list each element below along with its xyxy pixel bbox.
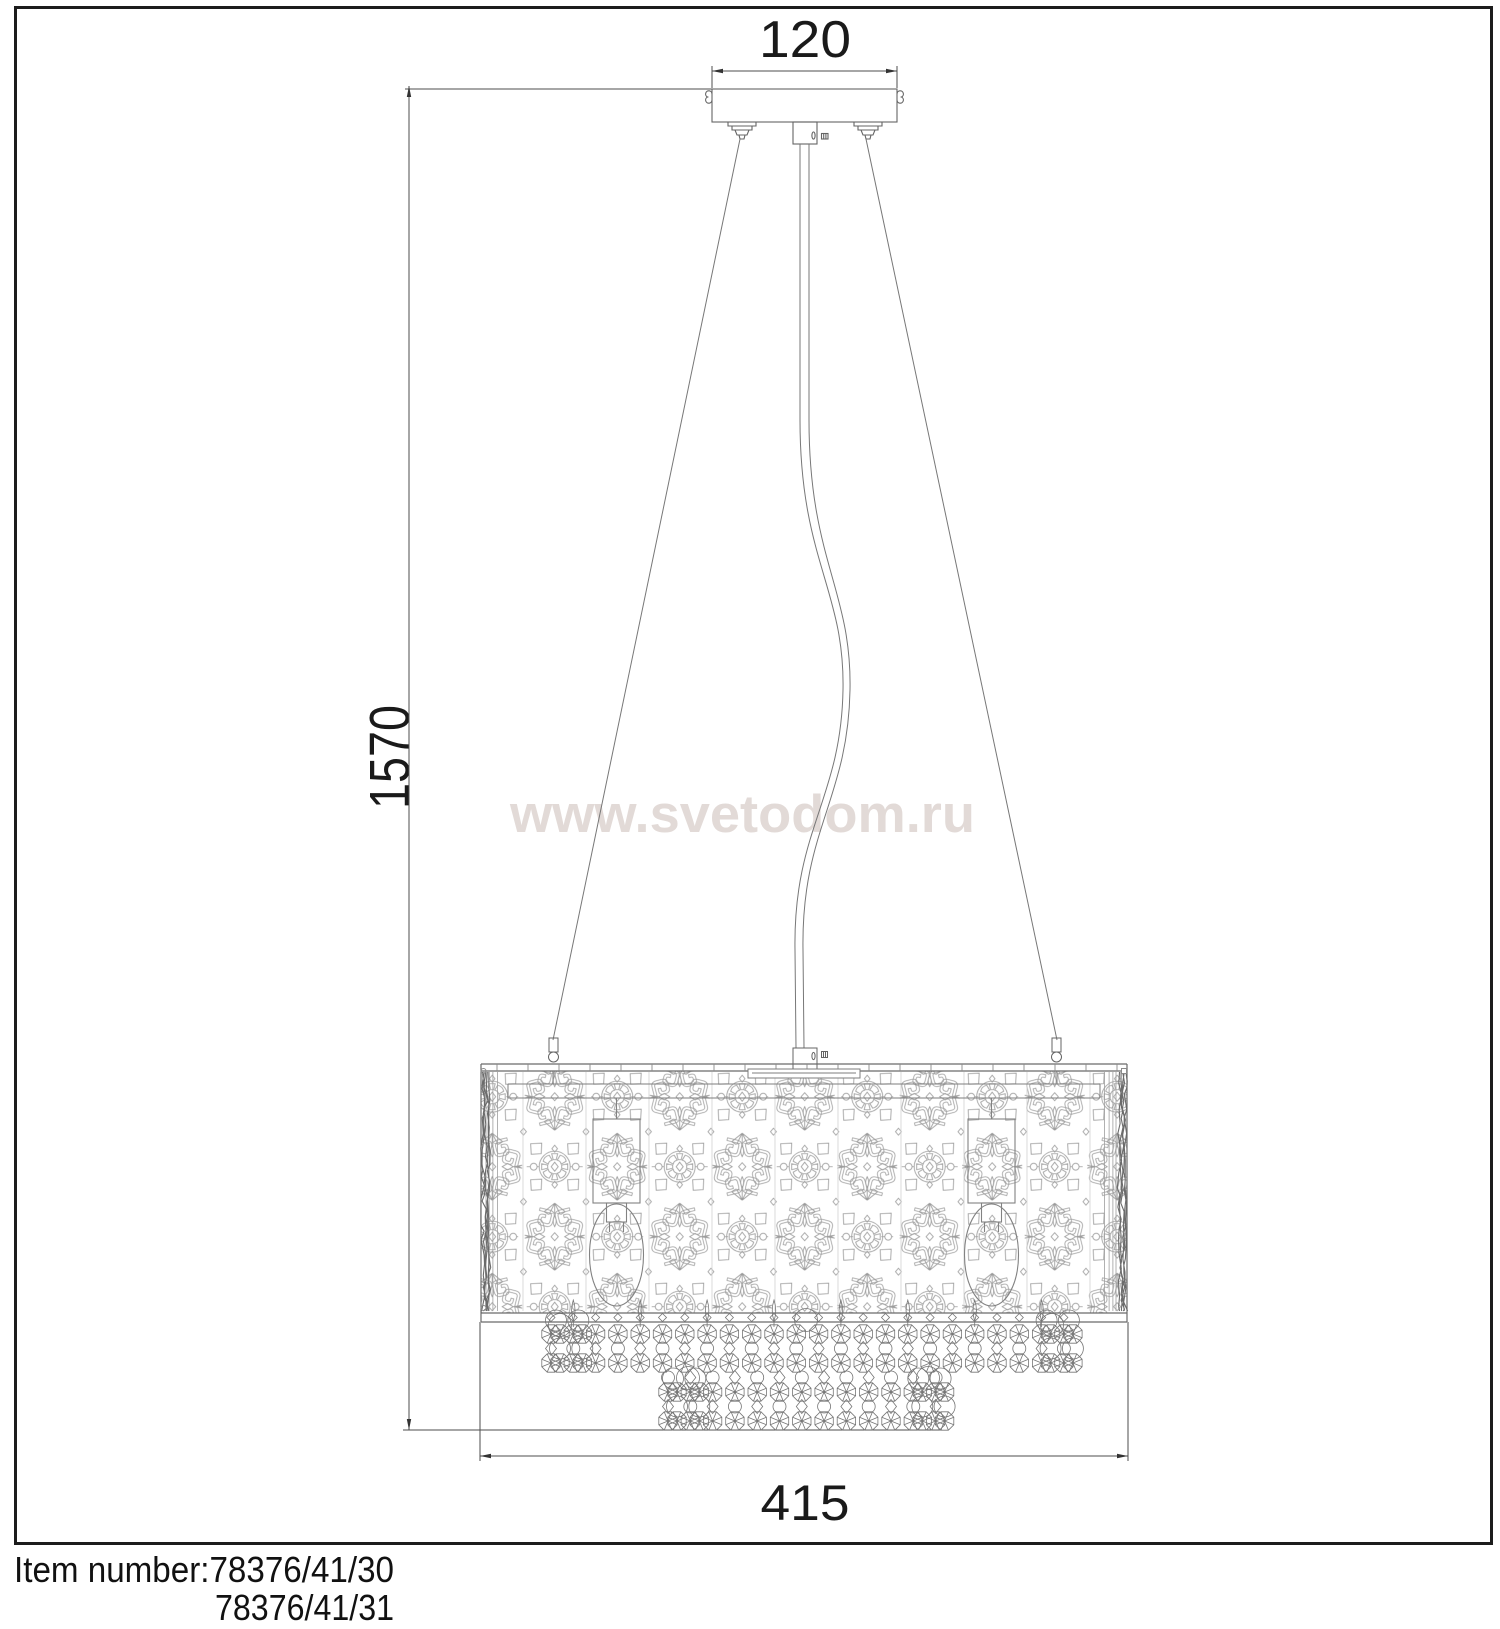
svg-text:78376/41/31: 78376/41/31	[215, 1587, 394, 1628]
svg-text:Item number:78376/41/30: Item number:78376/41/30	[14, 1549, 394, 1590]
svg-text:415: 415	[761, 1475, 850, 1531]
svg-text:1570: 1570	[358, 705, 422, 809]
svg-text:www.svetodom.ru: www.svetodom.ru	[509, 785, 975, 844]
svg-text:120: 120	[759, 11, 851, 69]
